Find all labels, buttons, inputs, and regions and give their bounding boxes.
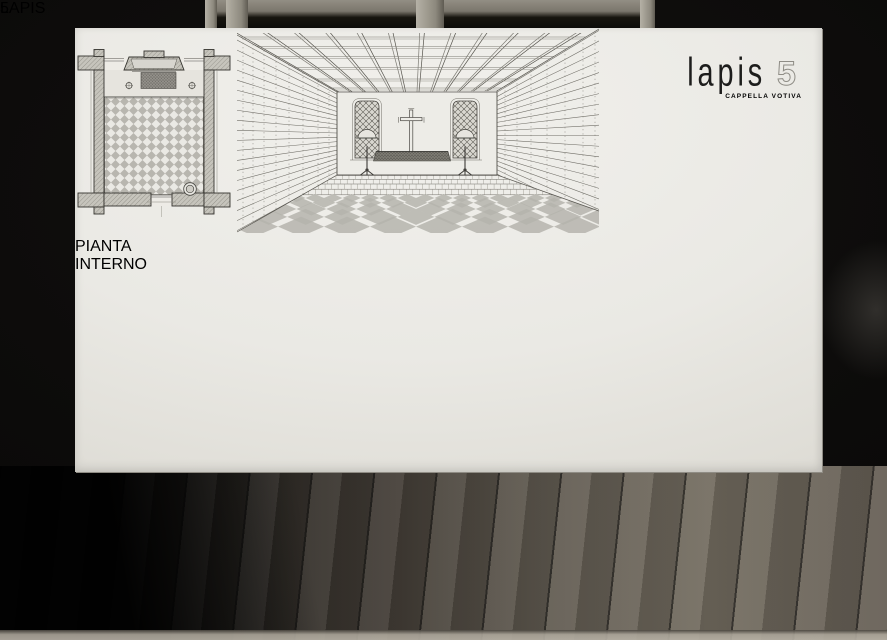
label-card-number: 5 — [0, 0, 9, 18]
easel-top-post-2 — [226, 0, 248, 28]
logo-row: lapis 5 — [665, 52, 802, 93]
light-glow — [815, 235, 887, 385]
interior-caption: INTERNO — [75, 256, 822, 274]
easel-top-post-1 — [205, 0, 217, 28]
ceiling-beams — [237, 32, 609, 92]
interior-perspective-drawing — [237, 28, 609, 233]
easel-top-post-center — [416, 0, 444, 28]
floor-shadow — [0, 466, 420, 640]
altar — [374, 152, 451, 162]
floor-plan-drawing — [75, 43, 233, 233]
logo-number-outline: 5 — [775, 55, 802, 93]
easel-top-rail-right — [444, 0, 640, 28]
logo-block: lapis 5 CAPPELLA VOTIVA — [665, 52, 802, 100]
plan-checker-floor — [105, 97, 204, 195]
easel-top-post-right — [640, 0, 655, 28]
card-number-text: 5 — [0, 0, 9, 17]
logo-brand: lapis — [687, 52, 766, 92]
plan-caption: PIANTA — [75, 238, 822, 256]
logo-number: 5 — [777, 55, 796, 93]
floor-light-strip — [0, 630, 887, 640]
plan-altar — [141, 73, 176, 89]
checker-floor-steps — [237, 175, 609, 233]
presentation-board: lapis 5 CAPPELLA VOTIVA — [75, 28, 822, 472]
